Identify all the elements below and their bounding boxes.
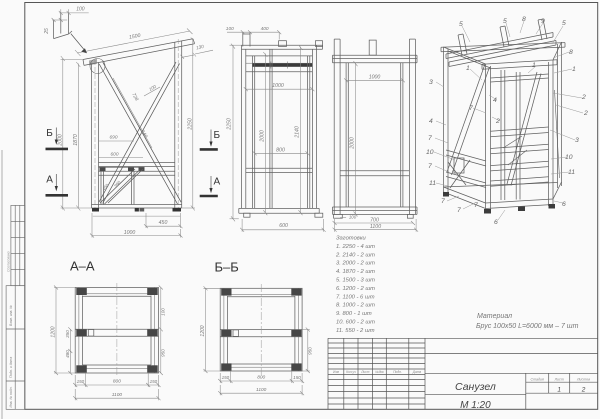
svg-text:7: 7 (428, 135, 432, 142)
svg-text:100: 100 (160, 308, 165, 316)
svg-text:100: 100 (148, 84, 157, 92)
svg-text:Согласовано: Согласовано (7, 251, 11, 272)
svg-text:480: 480 (65, 350, 70, 358)
svg-text:Подп. и дата: Подп. и дата (9, 357, 13, 378)
svg-text:Дата: Дата (412, 370, 422, 374)
svg-text:130: 130 (196, 44, 205, 51)
svg-text:150: 150 (293, 375, 301, 380)
svg-text:9: 9 (541, 18, 545, 25)
svg-text:2250: 2250 (187, 118, 193, 131)
svg-text:7: 7 (428, 163, 432, 170)
svg-text:450: 450 (159, 220, 168, 226)
svg-text:6: 6 (494, 219, 498, 226)
svg-text:Б: Б (46, 128, 53, 139)
svg-text:Лист: Лист (554, 378, 564, 382)
svg-text:2: 2 (583, 110, 588, 117)
svg-text:6: 6 (562, 201, 566, 208)
svg-text:5: 5 (503, 18, 507, 25)
svg-text:2000: 2000 (57, 134, 63, 147)
svg-text:700: 700 (370, 217, 379, 223)
svg-text:Взам. инв. №: Взам. инв. № (9, 305, 13, 326)
svg-text:7: 7 (474, 202, 478, 209)
svg-text:10. 600 - 2 шт: 10. 600 - 2 шт (336, 320, 375, 326)
svg-text:8. 1000 - 2 шт: 8. 1000 - 2 шт (336, 303, 375, 309)
svg-text:150: 150 (150, 379, 158, 384)
svg-text:350: 350 (65, 330, 70, 338)
svg-text:10: 10 (426, 149, 434, 156)
svg-text:11. 550 - 2 шт: 11. 550 - 2 шт (336, 328, 375, 334)
svg-text:2: 2 (581, 387, 586, 394)
svg-text:Стадия: Стадия (530, 378, 544, 382)
svg-text:1100: 1100 (370, 224, 381, 230)
svg-text:800: 800 (113, 379, 121, 385)
svg-text:728: 728 (130, 92, 139, 102)
svg-text:690: 690 (109, 135, 117, 141)
svg-text:2. 2140 - 2 шт: 2. 2140 - 2 шт (335, 252, 375, 258)
svg-text:1100: 1100 (256, 387, 267, 393)
svg-text:№док: №док (375, 370, 384, 374)
svg-text:4: 4 (493, 97, 497, 104)
svg-text:2: 2 (581, 94, 586, 101)
svg-text:2250: 2250 (227, 118, 233, 131)
svg-text:3: 3 (575, 137, 579, 144)
svg-text:2140: 2140 (295, 126, 301, 139)
svg-text:4. 1870 - 2 шт: 4. 1870 - 2 шт (336, 269, 375, 275)
svg-text:Подп.: Подп. (393, 370, 402, 374)
svg-text:1200: 1200 (51, 326, 57, 337)
svg-text:2: 2 (495, 118, 500, 125)
svg-text:4: 4 (429, 118, 433, 125)
svg-text:1200: 1200 (200, 325, 206, 336)
svg-text:А: А (46, 175, 53, 186)
svg-text:150: 150 (77, 379, 85, 384)
svg-text:2000: 2000 (259, 130, 265, 143)
svg-text:Изм: Изм (333, 370, 340, 374)
svg-text:950: 950 (307, 347, 312, 355)
svg-text:1: 1 (532, 62, 536, 69)
svg-text:А–А: А–А (70, 259, 95, 274)
svg-text:Санузел: Санузел (455, 381, 496, 393)
svg-text:Брус 100х50 L=6000 мм – 7 шт: Брус 100х50 L=6000 мм – 7 шт (476, 323, 579, 330)
svg-text:1000: 1000 (272, 83, 284, 89)
svg-text:150: 150 (222, 375, 230, 380)
svg-text:9. 800 - 1 шт: 9. 800 - 1 шт (336, 311, 372, 317)
svg-text:100: 100 (349, 215, 357, 220)
svg-text:А: А (214, 177, 221, 188)
svg-text:11: 11 (429, 180, 436, 187)
svg-text:10: 10 (565, 154, 573, 161)
svg-text:25: 25 (44, 28, 50, 35)
svg-text:5: 5 (459, 21, 463, 28)
svg-text:3: 3 (429, 79, 433, 86)
svg-text:Листов: Листов (576, 378, 590, 382)
svg-text:1870: 1870 (73, 134, 79, 146)
svg-text:Материал: Материал (477, 313, 512, 320)
svg-text:1: 1 (466, 65, 470, 72)
svg-text:6. 1200 - 2 шт: 6. 1200 - 2 шт (336, 286, 375, 292)
svg-text:950: 950 (160, 349, 165, 357)
svg-text:1: 1 (572, 66, 576, 73)
svg-text:3. 2000 - 2 шт: 3. 2000 - 2 шт (336, 261, 375, 267)
svg-text:100: 100 (76, 6, 85, 12)
svg-text:7: 7 (457, 207, 461, 214)
svg-text:7: 7 (469, 105, 473, 112)
svg-text:Б–Б: Б–Б (215, 260, 239, 275)
svg-text:7. 1100 - 6 шт: 7. 1100 - 6 шт (336, 294, 375, 300)
svg-text:2000: 2000 (350, 137, 356, 150)
svg-text:Инв. № подл.: Инв. № подл. (9, 386, 13, 407)
svg-text:800: 800 (257, 375, 265, 381)
svg-text:390: 390 (113, 179, 122, 188)
svg-text:100: 100 (226, 26, 234, 32)
svg-text:5: 5 (562, 20, 566, 27)
svg-text:Б: Б (214, 130, 221, 141)
svg-text:1: 1 (557, 386, 561, 393)
svg-text:5. 1500 - 3 шт: 5. 1500 - 3 шт (336, 278, 375, 284)
svg-text:Лист: Лист (360, 370, 370, 374)
svg-text:11: 11 (568, 169, 575, 176)
svg-text:1. 2250 - 4 шт: 1. 2250 - 4 шт (336, 244, 375, 250)
svg-text:800: 800 (276, 147, 285, 153)
svg-text:8: 8 (522, 16, 526, 23)
svg-text:8: 8 (569, 49, 573, 56)
svg-text:1000: 1000 (124, 230, 136, 236)
svg-text:400: 400 (261, 26, 269, 32)
svg-text:1500: 1500 (129, 33, 142, 41)
svg-text:7: 7 (441, 198, 445, 205)
svg-text:М 1:20: М 1:20 (460, 400, 491, 411)
svg-text:1100: 1100 (112, 392, 123, 398)
svg-text:600: 600 (110, 152, 118, 158)
svg-text:1000: 1000 (369, 74, 381, 80)
svg-text:Заготовки: Заготовки (336, 236, 367, 242)
svg-text:600: 600 (279, 223, 288, 229)
svg-text:Кол.уч: Кол.уч (346, 370, 356, 374)
